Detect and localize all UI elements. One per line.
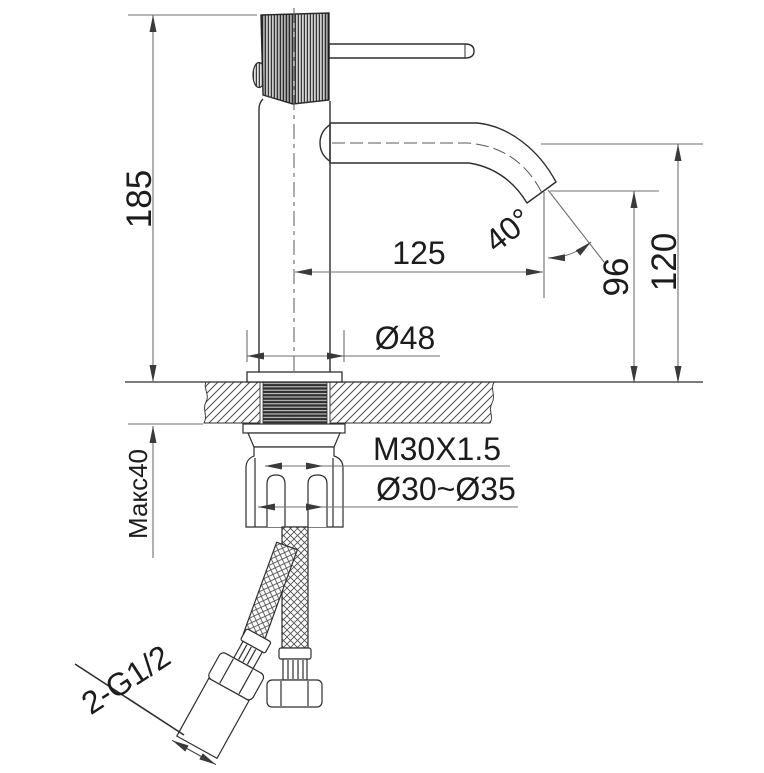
- handle-knob: [253, 13, 329, 104]
- label-total-height: 185: [120, 170, 159, 228]
- label-centerline-height: 120: [645, 233, 684, 291]
- label-deck-thickness: Макс40: [123, 449, 153, 539]
- mounting-collar: [248, 433, 340, 447]
- fork-slot-right: [308, 475, 327, 527]
- mounting-fork-nut: [246, 447, 343, 527]
- deck-section-right: [330, 382, 494, 423]
- label-spout-reach: 125: [392, 235, 445, 271]
- hose-ferrule: [279, 648, 311, 659]
- handle-lever: [329, 44, 474, 58]
- mounting-washer: [243, 424, 345, 433]
- hose-fitting-straight: [267, 648, 322, 707]
- label-hole-range: Ø30~Ø35: [376, 471, 516, 507]
- fork-slot-left: [267, 475, 285, 527]
- angle-arc: [548, 242, 591, 258]
- mounting-deck: [125, 382, 703, 423]
- drawing-canvas: 185 Макс40 125 40° 96 120 Ø48 M30X1.5 Ø3…: [0, 0, 764, 773]
- base-flange: [247, 372, 342, 382]
- mounting-hardware: [243, 424, 345, 527]
- hose-fitting-angled: [172, 623, 281, 764]
- mounting-thread-section: [263, 382, 327, 423]
- hose-hex-nut: [267, 680, 322, 707]
- dimension-labels: 185 Макс40 125 40° 96 120 Ø48 M30X1.5 Ø3…: [75, 170, 684, 722]
- label-base-diameter: Ø48: [375, 320, 435, 356]
- label-spout-angle: 40°: [478, 201, 538, 259]
- label-outlet-height: 96: [597, 258, 636, 297]
- faucet-dimension-drawing: 185 Макс40 125 40° 96 120 Ø48 M30X1.5 Ø3…: [0, 0, 764, 773]
- faucet-spout: [320, 123, 556, 203]
- deck-section-left: [204, 382, 260, 423]
- label-thread: M30X1.5: [373, 431, 501, 467]
- label-hose-connection: 2-G1/2: [75, 638, 177, 721]
